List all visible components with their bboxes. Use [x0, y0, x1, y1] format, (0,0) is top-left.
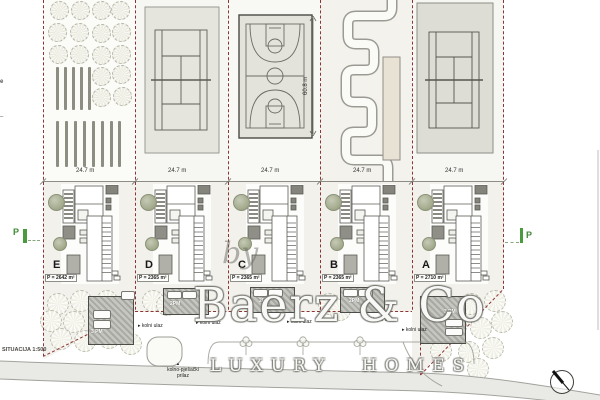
villa-label: E	[53, 259, 60, 271]
parking-count-label: 2PM	[259, 298, 269, 304]
tree-icon	[238, 237, 252, 251]
tree-icon	[330, 237, 344, 251]
villa-area-label: P = 2365 m²	[322, 274, 354, 282]
villa-label: B	[330, 259, 338, 271]
garage-door-icon	[121, 291, 135, 300]
villa-house-plan	[62, 185, 124, 285]
entrance-label: ▸ kolni ulaz	[196, 320, 221, 326]
car-icon	[93, 320, 111, 329]
plot-width-dimension: 24.7 m	[353, 168, 371, 174]
tree-icon	[325, 194, 342, 211]
entrance-label: ▸ kolni ulaz	[287, 319, 312, 325]
parking-count-label: 3 PM	[91, 329, 103, 335]
entrance-label: ▸ kolni ulaz	[402, 327, 427, 333]
tree-icon	[417, 194, 434, 211]
villa-label: C	[238, 259, 246, 271]
car-icon	[268, 289, 283, 297]
car-icon	[445, 319, 463, 327]
tree-icon	[140, 194, 157, 211]
p-marker-bar	[23, 229, 27, 243]
entrance-arrow-icon: ▸	[287, 319, 290, 325]
entrance-arrow-icon: ▸	[138, 323, 141, 329]
tree-icon	[145, 237, 159, 251]
plot-width-dimension: 24.7 m	[445, 168, 463, 174]
tree-icon	[422, 237, 436, 251]
court-depth-dimension: 60.8 m	[303, 77, 309, 95]
entrance-arrow-icon: ▸	[369, 317, 372, 323]
north-compass-icon	[548, 368, 576, 396]
car-icon	[358, 289, 373, 297]
plot-width-dimension: 24.7 m	[168, 168, 186, 174]
tree-icon	[48, 194, 65, 211]
entrance-label: ▸ kolni ulaz	[369, 317, 394, 323]
plot-width-dimension: 24.7 m	[261, 168, 279, 174]
edge-text-fragment: e	[0, 79, 3, 85]
tree-icon	[53, 237, 67, 251]
villa-label: A	[422, 259, 430, 271]
access-marker-icon: ▲	[176, 361, 180, 366]
entrance-arrow-icon: ▸	[196, 320, 199, 326]
car-icon	[445, 328, 463, 336]
entrance-label: ▸ kolni ulaz	[138, 323, 163, 329]
site-plan: 60.8 m 24.7 m 24.7 m 24.7 m 24.7 m 24.7 …	[0, 0, 600, 400]
villa-house-plan	[154, 185, 216, 285]
villa-label: D	[145, 259, 153, 271]
villa-area-label: P = 2365 m²	[230, 274, 262, 282]
car-icon	[343, 289, 358, 297]
tree-icon	[233, 194, 250, 211]
villa-house-plan	[339, 185, 401, 285]
p-marker-dash	[28, 240, 40, 241]
car-icon	[182, 291, 197, 299]
parking-count-label: 3 PM	[444, 309, 456, 315]
plot-width-dimension: 24.7 m	[76, 168, 94, 174]
villa-plot-a: A P = 2710 m²	[412, 181, 504, 313]
villa-area-label: P = 2365 m²	[137, 274, 169, 282]
scale-label: SITUACIJA 1:500	[2, 347, 46, 353]
p-marker-dash	[505, 242, 519, 243]
villa-house-plan	[431, 185, 493, 285]
car-icon	[167, 291, 182, 299]
p-marker-bar	[520, 228, 523, 243]
villa-house-plan	[247, 185, 309, 285]
villa-area-label: P = 2642 m²	[45, 274, 77, 282]
car-icon	[93, 310, 111, 319]
parking-count-label: 2PM	[170, 301, 180, 307]
car-icon	[253, 289, 268, 297]
edge-text-fragment: –	[0, 114, 3, 120]
access-label-line2: prilaz	[160, 374, 206, 379]
villa-area-label: P = 2710 m²	[414, 274, 446, 282]
parking-p-marker: P	[13, 227, 19, 237]
entrance-arrow-icon: ▸	[402, 327, 405, 333]
parking-p-marker: P	[526, 230, 532, 240]
parking-count-label: 2PM	[349, 298, 359, 304]
